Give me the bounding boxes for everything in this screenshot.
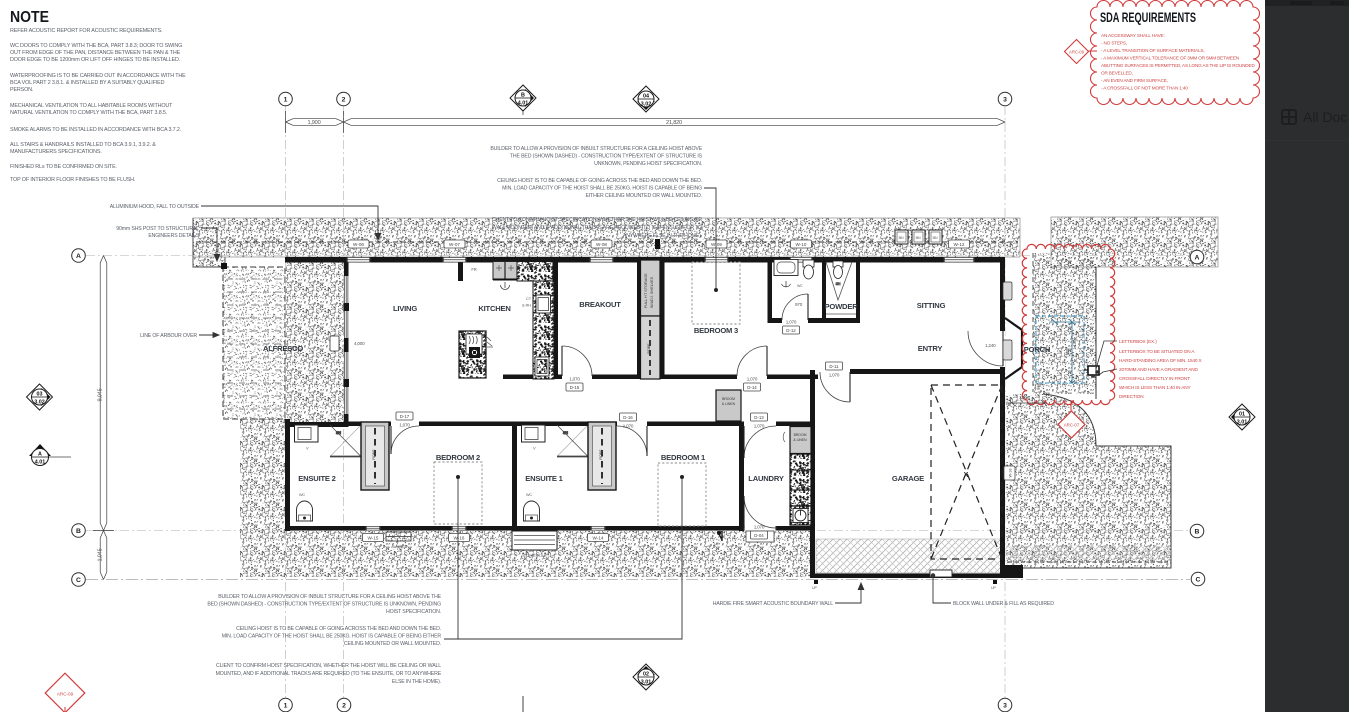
svg-text:SH: SH [836,282,841,286]
svg-text:BCA VOL PART 2 3.8.1. & INSTAL: BCA VOL PART 2 3.8.1. & INSTALLED BY A S… [10,80,165,86]
svg-text:POWDER: POWDER [825,302,859,311]
svg-text:& LINEN: & LINEN [722,402,736,406]
svg-text:SDA REQUIREMENTS: SDA REQUIREMENTS [1100,10,1196,25]
svg-text:CLOTHES LINE: CLOTHES LINE [521,554,547,558]
svg-text:WALL MOUNTED, AND IF ADDITIONA: WALL MOUNTED, AND IF ADDITIONAL TRACKS A… [492,225,702,231]
svg-text:SITTING: SITTING [917,301,946,310]
svg-text:D-15: D-15 [570,385,580,390]
svg-text:OR BEVELLED,: OR BEVELLED, [1101,71,1133,76]
svg-text:B: B [521,92,525,98]
svg-text:WC: WC [526,493,532,497]
svg-text:LIVING: LIVING [393,304,417,313]
svg-text:01: 01 [1239,411,1245,417]
svg-text:1,070: 1,070 [623,424,634,429]
svg-text:ENTRY: ENTRY [918,344,943,353]
svg-text:UP: UP [991,586,996,590]
svg-text:CEILING MOUNTED OR WALL MOUNTE: CEILING MOUNTED OR WALL MOUNTED. [344,641,441,647]
svg-text:UNKNOWN, PENDING HOIST SPECIFI: UNKNOWN, PENDING HOIST SPECIFICATION. [594,161,702,167]
svg-text:4,000: 4,000 [354,341,365,346]
svg-text:BIN: BIN [899,236,905,240]
svg-text:1,240: 1,240 [985,343,996,348]
svg-text:ELSE IN THE HOME).: ELSE IN THE HOME). [392,679,441,685]
svg-text:B: B [1195,528,1200,535]
svg-text:HARDIE FIRE SMART ACOUSTIC BOU: HARDIE FIRE SMART ACOUSTIC BOUNDARY WALL [713,601,834,607]
svg-text:W-10: W-10 [796,242,807,247]
svg-text:- A MAXIMUM VERTICAL TOLERANC: - A MAXIMUM VERTICAL TOLERANCE OF 3MM OR… [1101,56,1239,61]
svg-text:1,070: 1,070 [747,377,758,382]
svg-text:HARD-STANDING AREA OF MIN. 154: HARD-STANDING AREA OF MIN. 1540 X [1119,358,1203,363]
svg-text:WHICH IS LESS THAN 1:40 IN ANY: WHICH IS LESS THAN 1:40 IN ANY [1119,385,1192,390]
svg-text:TOP OF INTERIOR FLOOR FINISHES: TOP OF INTERIOR FLOOR FINISHES TO BE FLU… [10,177,135,183]
svg-text:W-09: W-09 [711,242,722,247]
svg-text:AN ACCESSWAY SHALL HAVE:: AN ACCESSWAY SHALL HAVE: [1101,33,1165,38]
svg-text:BLOCK WALL UNDER & FILL AS REQ: BLOCK WALL UNDER & FILL AS REQUIRED [953,601,1054,607]
svg-text:ROBE: ROBE [599,449,603,460]
svg-text:W/ADJ. SHELVES: W/ADJ. SHELVES [650,276,654,308]
svg-text:21,820: 21,820 [666,120,682,126]
svg-text:WATERPROOFING IS TO BE CARRIED: WATERPROOFING IS TO BE CARRIED OUT IN AC… [10,73,186,79]
svg-text:ALFRESCO: ALFRESCO [263,344,303,353]
svg-text:DIRECTION: DIRECTION [1119,394,1143,399]
svg-text:- NO STEPS,: - NO STEPS, [1101,41,1127,46]
svg-text:1,900: 1,900 [308,120,321,126]
svg-text:3: 3 [1003,702,1007,709]
svg-text:EITHER CEILING MOUNTED OR WALL: EITHER CEILING MOUNTED OR WALL MOUNTED. [585,193,702,199]
svg-text:- A LEVEL TRANSITION OF SURFA: - A LEVEL TRANSITION OF SURFACE MATERIAL… [1101,48,1204,53]
svg-text:UP: UP [812,586,817,590]
svg-text:ANYWHERE ELSE IN THE HOME).: ANYWHERE ELSE IN THE HOME). [623,233,702,239]
svg-text:ENSUITE 2: ENSUITE 2 [298,474,335,483]
svg-text:OUT FROM EDGE OF THE PAN, DIST: OUT FROM EDGE OF THE PAN, DISTANCE BETWE… [10,50,181,56]
svg-text:B: B [76,528,81,535]
svg-text:02: 02 [643,671,649,677]
svg-text:& LINEN: & LINEN [793,438,807,442]
svg-text:LETTERBOX TO BE SITUATED ON A: LETTERBOX TO BE SITUATED ON A [1119,349,1195,354]
svg-text:GARAGE: GARAGE [892,474,924,483]
svg-text:A: A [76,253,81,260]
svg-text:1,513: 1,513 [1019,395,1030,400]
svg-text:UP: UP [714,542,719,546]
svg-text:1: 1 [284,96,288,103]
svg-text:HOIST SPECIFICATION.: HOIST SPECIFICATION. [386,609,441,615]
svg-text:D-04: D-04 [754,533,764,538]
svg-text:1,070: 1,070 [569,377,580,382]
svg-text:1,070: 1,070 [786,320,797,325]
svg-text:2: 2 [342,96,346,103]
svg-text:- AN EVEN AND FIRM SURFACE,: - AN EVEN AND FIRM SURFACE, [1101,78,1168,83]
svg-text:WC: WC [299,493,305,497]
svg-text:DOOR EDGE TO BE 1200mm OR LIFT: DOOR EDGE TO BE 1200mm OR LIFT OFF HINGE… [10,57,180,63]
svg-text:FINISHED RLs TO BE CONFIRMED O: FINISHED RLs TO BE CONFIRMED ON SITE. [10,164,117,170]
svg-text:W-07: W-07 [449,242,460,247]
svg-text:ALL STAIRS & HANDRAILS INSTALL: ALL STAIRS & HANDRAILS INSTALLED TO BCA … [10,142,156,148]
svg-text:1,045: 1,045 [98,548,104,561]
svg-text:LAUNDRY: LAUNDRY [748,474,784,483]
svg-text:THE BED (SHOWN DASHED) - CONST: THE BED (SHOWN DASHED) - CONSTRUCTION TY… [510,154,703,160]
svg-text:- A CROSSFALL OF NOT MORE THA: - A CROSSFALL OF NOT MORE THAN 1:40 [1101,86,1188,91]
svg-text:W-18: W-18 [1009,468,1013,477]
svg-text:BREAKOUT: BREAKOUT [579,300,621,309]
svg-text:ROBE: ROBE [372,449,376,460]
svg-text:D-13: D-13 [754,415,764,420]
svg-text:CEILING HOIST IS TO BE CAPABLE: CEILING HOIST IS TO BE CAPABLE OF GOING … [236,626,441,632]
svg-text:C: C [1196,576,1201,583]
svg-text:910: 910 [1036,383,1041,390]
svg-text:KITCHEN: KITCHEN [478,304,510,313]
svg-text:WC DOORS TO COMPLY WITH THE BC: WC DOORS TO COMPLY WITH THE BCA, PART 3.… [10,43,182,49]
svg-text:W-16: W-16 [454,535,465,540]
svg-text:W-15: W-15 [368,535,379,540]
svg-text:REFER ACOUSTIC REPORT FOR ACOU: REFER ACOUSTIC REPORT FOR ACOUSTIC REQUI… [10,28,162,34]
svg-text:4.01: 4.01 [518,100,529,106]
svg-text:ARC-09: ARC-09 [1069,50,1085,55]
svg-text:PORCH: PORCH [1024,345,1050,354]
svg-text:SH: SH [563,431,568,435]
svg-text:3: 3 [1003,96,1007,103]
svg-text:ARC-07: ARC-07 [1064,423,1080,428]
svg-text:1: 1 [284,702,288,709]
svg-text:ROBE: ROBE [647,343,651,354]
svg-text:3.02: 3.02 [34,399,45,405]
svg-text:NATURAL VENTILATION TO COMPLY: NATURAL VENTILATION TO COMPLY WITH THE B… [10,110,167,116]
svg-text:3.02: 3.02 [641,101,652,107]
svg-text:D-11: D-11 [829,364,839,369]
svg-text:ALUMINIUM HOOD, FALL TO OUTSID: ALUMINIUM HOOD, FALL TO OUTSIDE [110,204,200,210]
svg-text:9,045: 9,045 [98,388,104,401]
svg-text:MIN. LOAD CAPACITY OF THE HOIS: MIN. LOAD CAPACITY OF THE HOIST SHALL BE… [222,634,442,640]
svg-text:2070MM AND HAVE A GRADIENT AND: 2070MM AND HAVE A GRADIENT AND [1119,367,1198,372]
svg-text:BEDROOM 1: BEDROOM 1 [661,453,706,462]
svg-text:W-06: W-06 [353,242,364,247]
svg-text:MECHANICAL VENTILATION TO ALL: MECHANICAL VENTILATION TO ALL HABITABLE … [10,103,173,109]
svg-text:All Doc: All Doc [1303,109,1347,125]
svg-text:MANUFACTURERS SPECIFICATIONS.: MANUFACTURERS SPECIFICATIONS. [10,149,102,155]
svg-text:BED (SHOWN DASHED) - CONSTRUCT: BED (SHOWN DASHED) - CONSTRUCTION TYPE/E… [207,602,441,608]
svg-text:1,070: 1,070 [399,423,410,428]
svg-text:LINE OF ARBOUR OVER: LINE OF ARBOUR OVER [140,333,197,339]
svg-text:D-16: D-16 [623,415,633,420]
svg-text:BIN: BIN [916,236,922,240]
svg-text:W-08: W-08 [596,242,607,247]
svg-text:PERSON.: PERSON. [10,87,33,93]
svg-text:CEILING HOIST IS TO BE CAPABLE: CEILING HOIST IS TO BE CAPABLE OF GOING … [497,178,702,184]
svg-text:970: 970 [795,302,803,307]
svg-text:1,136: 1,136 [1072,339,1077,349]
svg-text:LETTERBOX (EX.): LETTERBOX (EX.) [1119,339,1157,344]
svg-text:ABUTTING SURFACES IS PERMITTED: ABUTTING SURFACES IS PERMITTED, AS LONG … [1101,63,1255,68]
svg-text:2: 2 [342,702,346,709]
svg-text:03: 03 [37,391,43,397]
svg-text:AWNING: AWNING [391,545,405,549]
svg-text:SMOKE ALARMS TO BE INSTALLED I: SMOKE ALARMS TO BE INSTALLED IN ACCORDAN… [10,127,181,133]
svg-text:W-14: W-14 [593,535,604,540]
svg-text:04: 04 [643,93,649,99]
svg-text:CT: CT [526,296,532,301]
svg-text:WC: WC [797,284,803,288]
svg-text:W-12: W-12 [954,242,965,247]
svg-text:90mm SHS POST TO STRUCTURAL: 90mm SHS POST TO STRUCTURAL [116,226,199,232]
svg-text:3.01: 3.01 [1237,419,1248,425]
svg-text:A: A [1195,254,1200,261]
svg-text:ENGINEERS DETAILS: ENGINEERS DETAILS [148,233,199,239]
svg-text:1,070: 1,070 [754,424,765,429]
svg-text:ARC-09: ARC-09 [57,692,74,697]
svg-text:MOUNTED, AND IF ADDITIONAL TRA: MOUNTED, AND IF ADDITIONAL TRACKS ARE RE… [216,671,442,677]
svg-text:905: 905 [1065,348,1070,355]
svg-text:MIN. LOAD CAPACITY OF THE HOIS: MIN. LOAD CAPACITY OF THE HOIST SHALL BE… [502,186,702,192]
svg-text:1,070: 1,070 [829,373,840,378]
svg-text:CLIENT TO CONFIRM HOIST SPECIF: CLIENT TO CONFIRM HOIST SPECIFICATION, W… [216,663,441,669]
svg-text:BUILDER TO ALLOW A PROVISION O: BUILDER TO ALLOW A PROVISION OF INBUILT … [218,594,441,600]
svg-text:3.01: 3.01 [641,679,652,685]
svg-text:BUILDER TO ALLOW A PROVISION O: BUILDER TO ALLOW A PROVISION OF INBUILT … [490,146,702,152]
svg-text:C: C [76,577,81,584]
svg-text:BEDROOM 3: BEDROOM 3 [694,326,738,335]
svg-text:CROSSFALL DIRECTLY IN FRONT: CROSSFALL DIRECTLY IN FRONT [1119,376,1190,381]
svg-text:X: X [964,472,969,479]
svg-text:ENSUITE 1: ENSUITE 1 [525,474,563,483]
svg-text:& RH: & RH [522,303,531,308]
svg-text:D-17: D-17 [400,414,410,419]
svg-text:D-12: D-12 [786,328,796,333]
svg-text:FULL HT STORAGE: FULL HT STORAGE [644,273,648,308]
svg-text:BROOM: BROOM [794,433,807,437]
svg-text:A: A [38,451,42,457]
svg-text:4.01: 4.01 [35,459,46,465]
svg-text:BEDROOM 2: BEDROOM 2 [436,453,480,462]
svg-text:FR: FR [471,267,476,272]
svg-text:NOTE: NOTE [10,9,49,26]
svg-text:1,070: 1,070 [754,525,765,530]
svg-text:BROOM: BROOM [722,397,735,401]
svg-text:D-14: D-14 [747,385,757,390]
svg-text:SH: SH [336,431,341,435]
svg-text:CLIENT TO CONFIRM HOIST SPECIF: CLIENT TO CONFIRM HOIST SPECIFICATION, W… [492,217,703,223]
svg-text:BIN: BIN [933,236,939,240]
